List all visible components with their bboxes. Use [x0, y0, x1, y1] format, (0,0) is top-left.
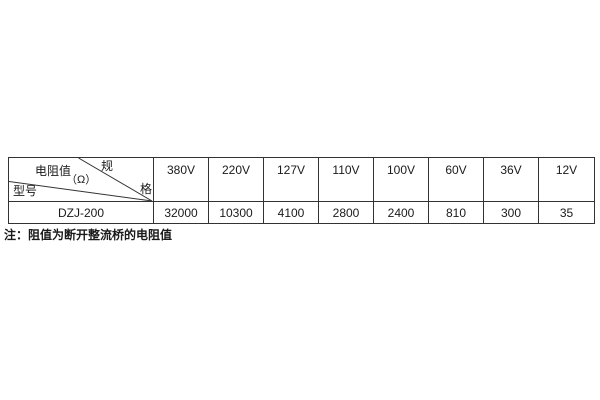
column-header-127v: 127V [264, 158, 319, 202]
spec-table: 规 格 电阻值 （Ω） 型号 380V 220V 127V 110V 100V … [8, 157, 595, 224]
page: 规 格 电阻值 （Ω） 型号 380V 220V 127V 110V 100V … [0, 0, 600, 400]
column-header-220v: 220V [209, 158, 264, 202]
column-header-380v: 380V [154, 158, 209, 202]
value-cell-380v: 32000 [154, 202, 209, 223]
corner-label-model: 型号 [13, 185, 37, 197]
column-header-36v: 36V [484, 158, 539, 202]
value-cell-110v: 2800 [319, 202, 374, 223]
corner-label-spec-top: 规 [101, 160, 113, 172]
column-header-60v: 60V [429, 158, 484, 202]
column-header-12v: 12V [539, 158, 594, 202]
value-cell-12v: 35 [539, 202, 594, 223]
value-cell-100v: 2400 [374, 202, 429, 223]
value-cell-220v: 10300 [209, 202, 264, 223]
corner-label-spec-bottom: 格 [140, 183, 152, 195]
table-corner-cell: 规 格 电阻值 （Ω） 型号 [9, 158, 154, 202]
value-cell-127v: 4100 [264, 202, 319, 223]
value-cell-60v: 810 [429, 202, 484, 223]
column-header-110v: 110V [319, 158, 374, 202]
corner-label-ohm-unit: （Ω） [66, 175, 96, 186]
footnote: 注：阻值为断开整流桥的电阻值 [4, 226, 172, 243]
value-cell-36v: 300 [484, 202, 539, 223]
column-header-100v: 100V [374, 158, 429, 202]
model-cell: DZJ-200 [9, 202, 154, 223]
